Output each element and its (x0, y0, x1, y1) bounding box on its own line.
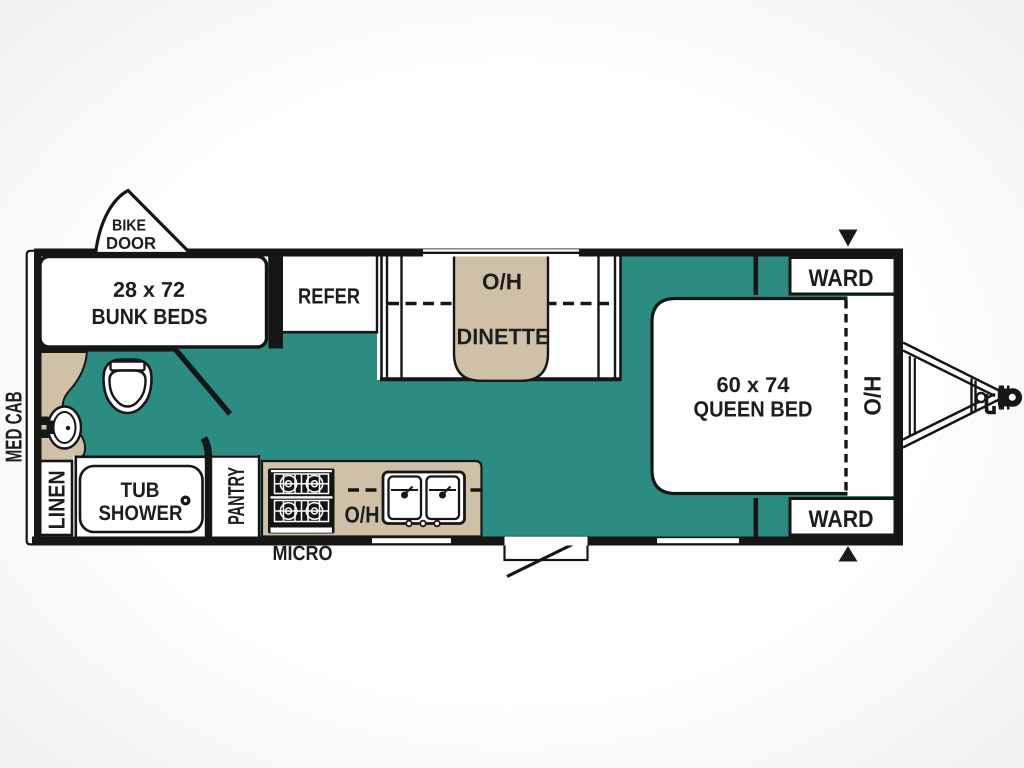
svg-text:MICRO: MICRO (272, 542, 332, 565)
svg-text:BIKE: BIKE (112, 217, 146, 234)
svg-text:SHOWER: SHOWER (98, 502, 182, 525)
svg-text:28 x 72: 28 x 72 (113, 278, 185, 302)
svg-text:LINEN: LINEN (43, 470, 69, 529)
svg-text:WARD: WARD (808, 506, 873, 533)
svg-text:O/H: O/H (859, 376, 885, 416)
svg-text:TUB: TUB (120, 479, 159, 502)
svg-text:PANTRY: PANTRY (223, 467, 249, 525)
svg-text:QUEEN BED: QUEEN BED (693, 397, 812, 422)
svg-text:O/H: O/H (482, 269, 522, 294)
svg-text:60 x 74: 60 x 74 (717, 373, 790, 397)
svg-text:WARD: WARD (809, 265, 874, 292)
svg-text:REFER: REFER (298, 283, 360, 308)
svg-text:BUNK BEDS: BUNK BEDS (92, 304, 208, 329)
svg-text:DOOR: DOOR (106, 234, 156, 253)
svg-text:MED CAB: MED CAB (0, 391, 26, 462)
svg-text:DINETTE: DINETTE (457, 324, 550, 349)
svg-text:O/H: O/H (344, 501, 379, 527)
